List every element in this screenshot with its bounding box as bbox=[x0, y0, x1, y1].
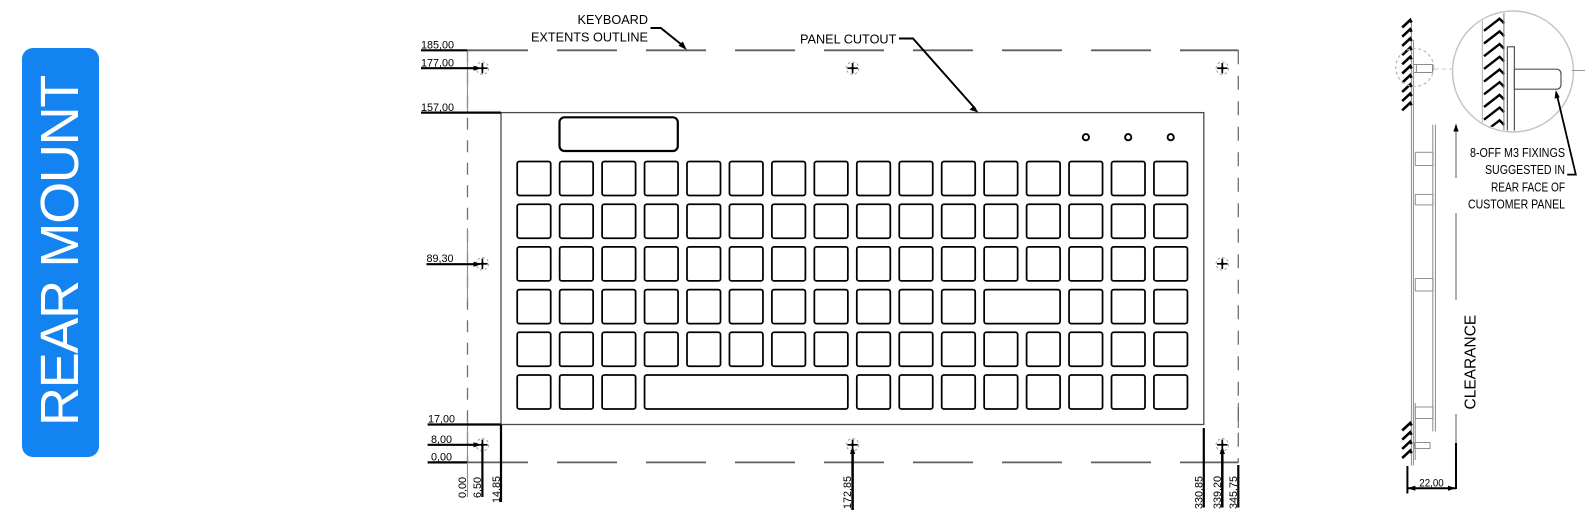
svg-text:CUSTOMER PANEL: CUSTOMER PANEL bbox=[1468, 197, 1565, 212]
svg-text:EXTENTS OUTLINE: EXTENTS OUTLINE bbox=[531, 31, 648, 45]
svg-text:KEYBOARD: KEYBOARD bbox=[577, 13, 648, 27]
svg-text:REAR FACE OF: REAR FACE OF bbox=[1491, 179, 1565, 194]
svg-text:8-OFF M3 FIXINGS: 8-OFF M3 FIXINGS bbox=[1470, 145, 1565, 160]
svg-text:PANEL CUTOUT: PANEL CUTOUT bbox=[800, 32, 897, 46]
svg-text:SUGGESTED IN: SUGGESTED IN bbox=[1485, 162, 1565, 177]
svg-text:CLEARANCE: CLEARANCE bbox=[1463, 315, 1480, 410]
